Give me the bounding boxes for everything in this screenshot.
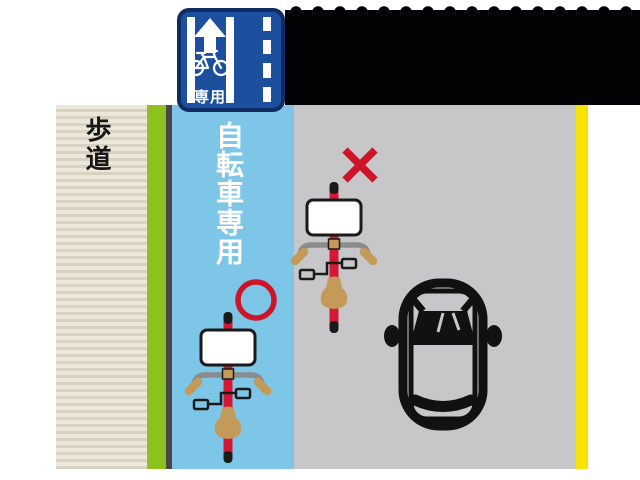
correct-mark-icon <box>238 282 274 318</box>
wrong-mark-icon <box>345 150 375 180</box>
road-safety-illustration: 歩道 自転車専用 専用 <box>0 0 640 480</box>
bicycle-on-roadway-icon <box>295 182 373 333</box>
bicycle-in-bike-lane-icon <box>189 312 267 463</box>
car-top-view-icon <box>384 283 502 426</box>
scene-objects <box>0 0 640 480</box>
